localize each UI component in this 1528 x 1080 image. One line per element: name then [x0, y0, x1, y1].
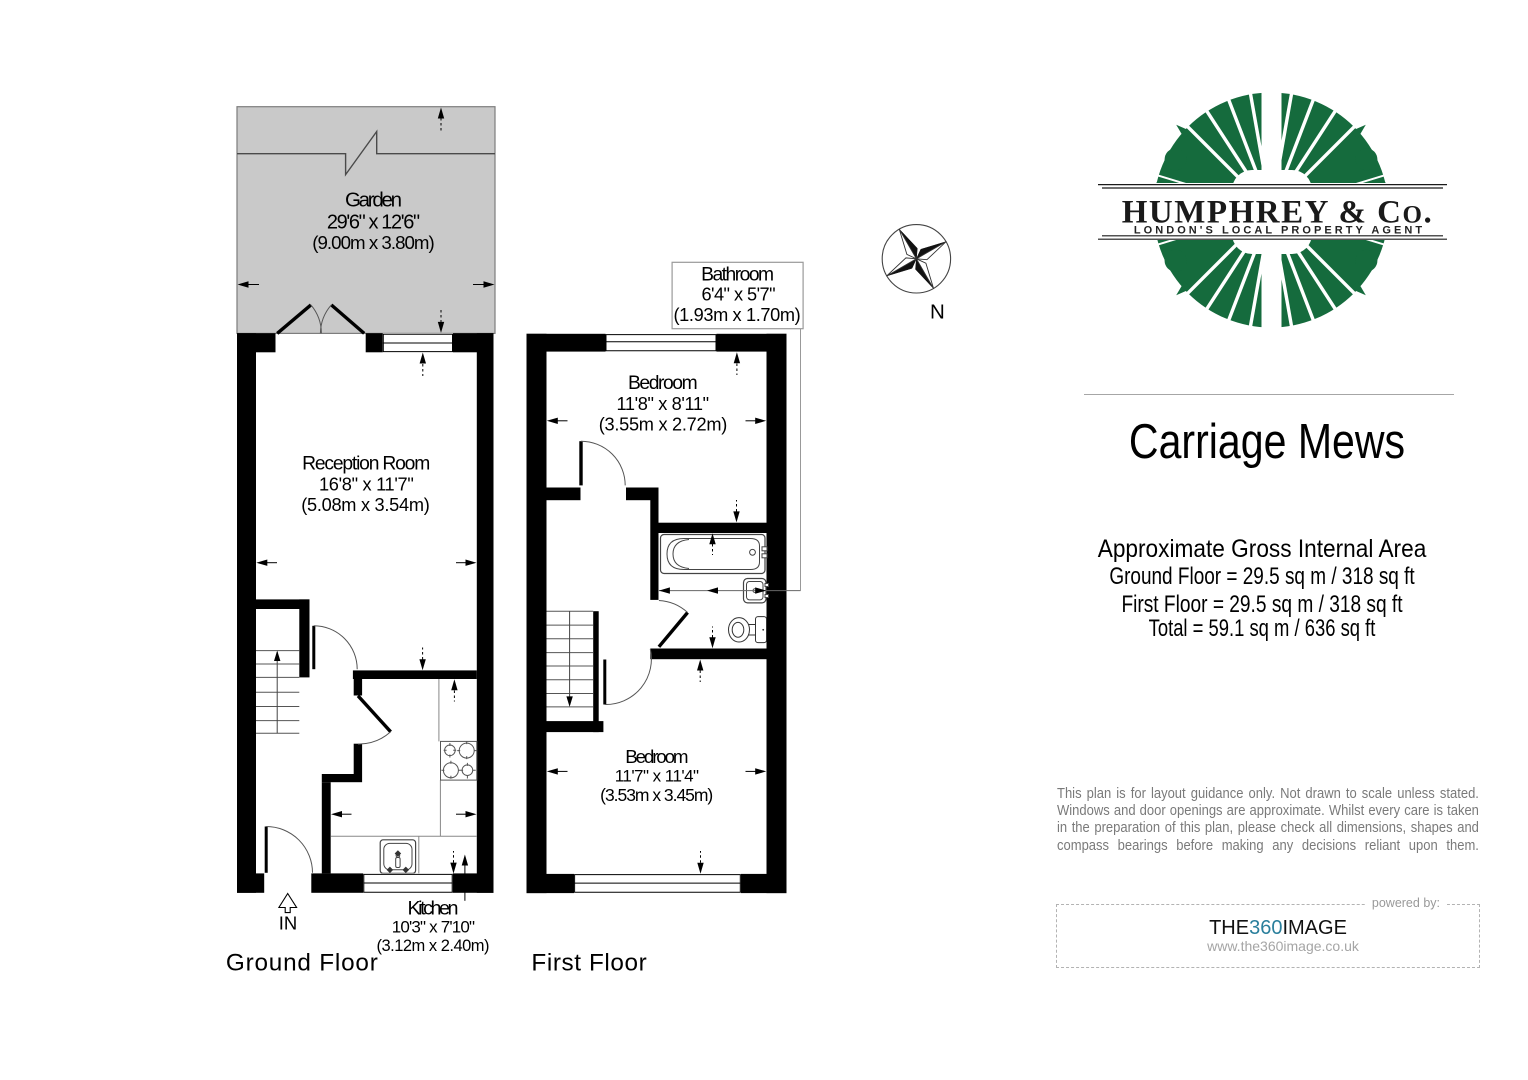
svg-text:6'4" x 5'7": 6'4" x 5'7": [701, 285, 775, 305]
svg-text:First Floor: First Floor: [531, 949, 647, 976]
svg-text:N: N: [930, 301, 945, 324]
svg-text:29'6" x 12'6": 29'6" x 12'6": [327, 212, 420, 234]
svg-text:Garden: Garden: [345, 189, 402, 212]
svg-text:11'7" x 11'4": 11'7" x 11'4": [615, 767, 699, 786]
svg-text:10'3" x 7'10": 10'3" x 7'10": [392, 918, 475, 937]
svg-text:(9.00m x 3.80m): (9.00m x 3.80m): [312, 232, 435, 253]
svg-text:Reception Room: Reception Room: [302, 454, 430, 475]
svg-text:(3.55m x 2.72m): (3.55m x 2.72m): [599, 415, 728, 435]
svg-text:Bathroom: Bathroom: [701, 264, 774, 285]
svg-text:Bedroom: Bedroom: [628, 373, 698, 394]
svg-text:16'8" x 11'7": 16'8" x 11'7": [319, 474, 414, 494]
svg-text:Kitchen: Kitchen: [407, 898, 458, 920]
svg-text:11'8" x 8'11": 11'8" x 8'11": [617, 394, 710, 414]
svg-text:(3.12m x 2.40m): (3.12m x 2.40m): [376, 937, 489, 955]
svg-text:Bedroom: Bedroom: [625, 746, 688, 767]
svg-text:IN: IN: [279, 913, 298, 934]
svg-text:Ground Floor: Ground Floor: [226, 949, 379, 976]
svg-text:(1.93m x 1.70m): (1.93m x 1.70m): [674, 305, 801, 325]
svg-text:LONDON'S LOCAL PROPERTY AGENT: LONDON'S LOCAL PROPERTY AGENT: [1134, 225, 1425, 237]
svg-text:(3.53m x 3.45m): (3.53m x 3.45m): [600, 785, 713, 805]
svg-text:(5.08m x 3.54m): (5.08m x 3.54m): [301, 495, 430, 515]
